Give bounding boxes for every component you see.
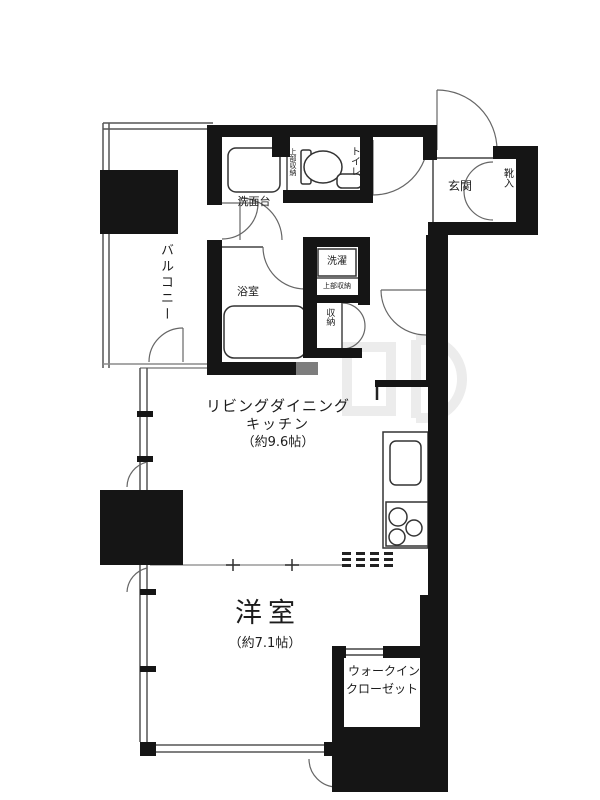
kitchen-sink [390, 441, 421, 485]
entrance-label: 玄関 [448, 180, 472, 194]
ldk-door [381, 290, 426, 335]
toilet-hand-basin [337, 174, 362, 188]
counter-hatch [342, 552, 393, 567]
toilet-upper-storage-label: 上部収納 [289, 148, 297, 176]
laundry-upper-storage-label: 上部収納 [323, 282, 351, 290]
wic-label-line1: ウォークイン [348, 665, 420, 679]
wic-label-line2: クローゼット [346, 683, 418, 697]
hall-door [373, 140, 428, 195]
front-door [437, 90, 497, 150]
shoe-cabinet-label: 靴入 [501, 168, 513, 188]
burner [389, 508, 407, 526]
balcony-label: バルコニー [157, 243, 172, 323]
bedroom-size-label: （約7.1帖） [229, 637, 302, 652]
storage-label: 収納 [324, 308, 334, 326]
bathroom-door [263, 247, 305, 289]
floor-plan: バルコニー 洗面台 トイレ 上部収納 玄関 靴入 浴室 洗濯 上部収納 収納 リ… [0, 0, 600, 800]
burner [406, 520, 422, 536]
pillar [100, 170, 178, 234]
bathtub [224, 306, 306, 358]
bedroom-label: 洋室 [235, 598, 301, 629]
ldk-label-line2: キッチン [246, 417, 310, 433]
balcony-main-door [149, 328, 183, 362]
burner [389, 529, 405, 545]
ldk-size-label: （約9.6帖） [242, 436, 315, 451]
bathroom-label: 浴室 [237, 286, 259, 299]
ldk-label-line1: リビングダイニング [206, 398, 350, 415]
pillar [100, 490, 183, 565]
walls [100, 125, 538, 792]
toilet-label: トイレ [348, 146, 360, 176]
washstand-label: 洗面台 [238, 196, 271, 209]
laundry-label: 洗濯 [327, 256, 347, 268]
